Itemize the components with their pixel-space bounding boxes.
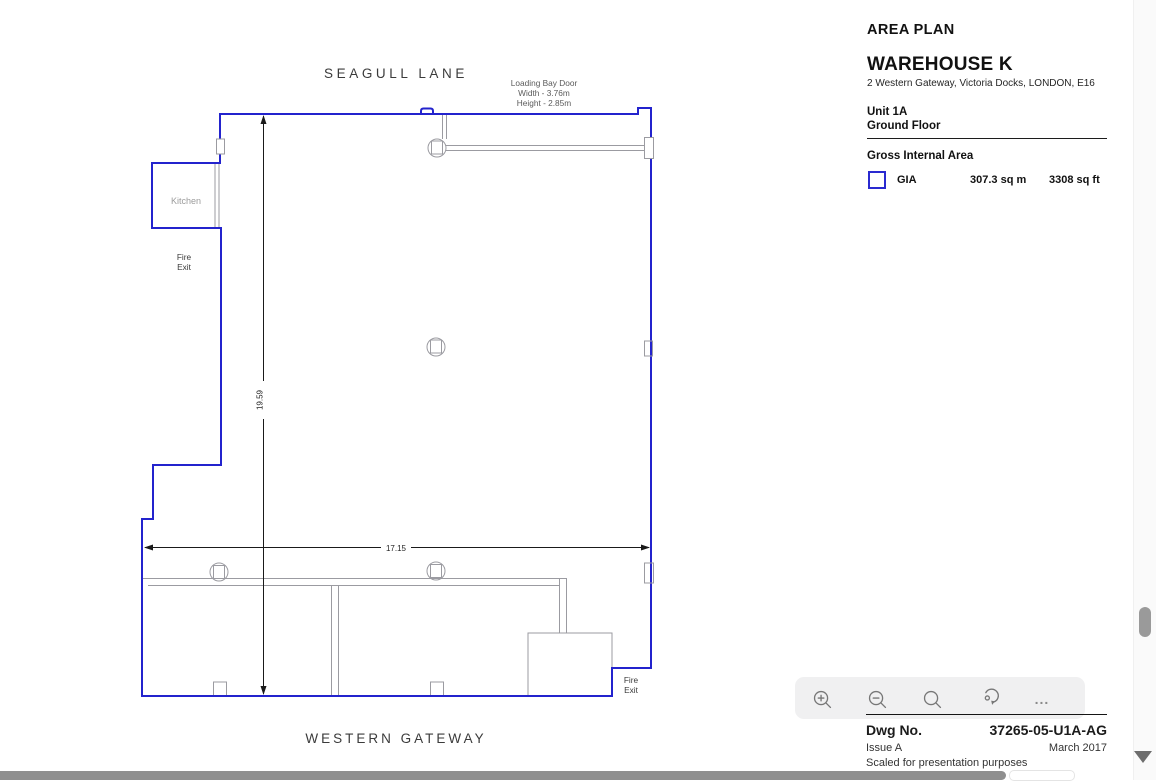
search-button[interactable] xyxy=(917,686,947,712)
loading-bay-label-3: Height - 2.85m xyxy=(517,98,572,108)
fire-exit-right-1: Fire xyxy=(624,675,639,685)
columns xyxy=(210,139,446,581)
rotate-button[interactable] xyxy=(973,686,1003,712)
gia-sq-m: 307.3 sq m xyxy=(970,174,1026,186)
dwg-no-label: Dwg No. xyxy=(866,722,922,738)
gia-row: GIA 307.3 sq m 3308 sq ft xyxy=(867,171,1107,191)
page-title: AREA PLAN xyxy=(867,22,1107,38)
horizontal-scrollbar-thumb[interactable] xyxy=(0,771,1006,780)
gia-label: GIA xyxy=(897,174,917,186)
issue-label: Issue A xyxy=(866,742,902,754)
floor-plan: SEAGULL LANE Loading Bay Door Width - 3.… xyxy=(0,0,760,780)
fire-exit-right-2: Exit xyxy=(624,685,639,695)
kitchen-door xyxy=(217,139,225,154)
horizontal-scrollbar-track-end xyxy=(1009,770,1075,781)
street-label-bottom: WESTERN GATEWAY xyxy=(305,731,486,746)
wall-bracket-low xyxy=(645,563,654,583)
dimension-height-label: 19.59 xyxy=(256,389,265,410)
more-icon: ... xyxy=(1035,694,1050,704)
street-label-top: SEAGULL LANE xyxy=(324,66,468,81)
property-name: WAREHOUSE K xyxy=(867,54,1107,76)
kitchen-label: Kitchen xyxy=(171,196,201,206)
internal-walls xyxy=(143,115,654,695)
property-address: 2 Western Gateway, Victoria Docks, LONDO… xyxy=(867,78,1107,89)
zoom-in-button[interactable] xyxy=(807,686,837,712)
rail-end-plate xyxy=(645,138,654,159)
store-room-outline xyxy=(528,633,612,696)
gia-sq-ft: 3308 sq ft xyxy=(1049,174,1100,186)
gia-color-swatch xyxy=(868,171,886,189)
scroll-down-arrow-icon[interactable] xyxy=(1134,751,1152,763)
bottom-interior-wall xyxy=(143,579,566,586)
zoom-out-icon xyxy=(866,688,889,711)
info-panel: AREA PLAN WAREHOUSE K 2 Western Gateway,… xyxy=(867,22,1107,191)
unit-boundary xyxy=(142,108,651,696)
bottom-door-2 xyxy=(431,682,444,695)
drawing-title-block: Dwg No. 37265-05-U1A-AG Issue A March 20… xyxy=(866,714,1107,769)
rotate-icon xyxy=(977,688,1000,711)
floor-label: Ground Floor xyxy=(867,120,1107,139)
viewer-toolbar: ... xyxy=(795,677,1085,719)
loading-bay-stub xyxy=(443,115,447,139)
kitchen-partition xyxy=(215,164,219,227)
fire-exit-left-2: Exit xyxy=(177,262,192,272)
more-button[interactable]: ... xyxy=(1027,686,1057,712)
vertical-scrollbar-track[interactable] xyxy=(1133,0,1156,780)
date-label: March 2017 xyxy=(1049,742,1107,754)
vertical-wall-b xyxy=(560,578,567,633)
scale-note: Scaled for presentation purposes xyxy=(866,757,1107,769)
search-icon xyxy=(921,688,944,711)
zoom-out-button[interactable] xyxy=(862,686,892,712)
bottom-door-1 xyxy=(214,682,227,695)
loading-bay-label-1: Loading Bay Door xyxy=(511,78,578,88)
vertical-wall-a xyxy=(332,586,339,695)
unit-label: Unit 1A xyxy=(867,106,1107,118)
gia-heading: Gross Internal Area xyxy=(867,150,1107,162)
loading-bay-rail xyxy=(446,146,645,151)
zoom-in-icon xyxy=(811,688,834,711)
vertical-scrollbar-thumb[interactable] xyxy=(1139,607,1151,637)
dimension-width-label: 17.15 xyxy=(386,544,407,553)
loading-bay-label-2: Width - 3.76m xyxy=(518,88,570,98)
fire-exit-left-1: Fire xyxy=(177,252,192,262)
dwg-no-value: 37265-05-U1A-AG xyxy=(990,722,1108,738)
